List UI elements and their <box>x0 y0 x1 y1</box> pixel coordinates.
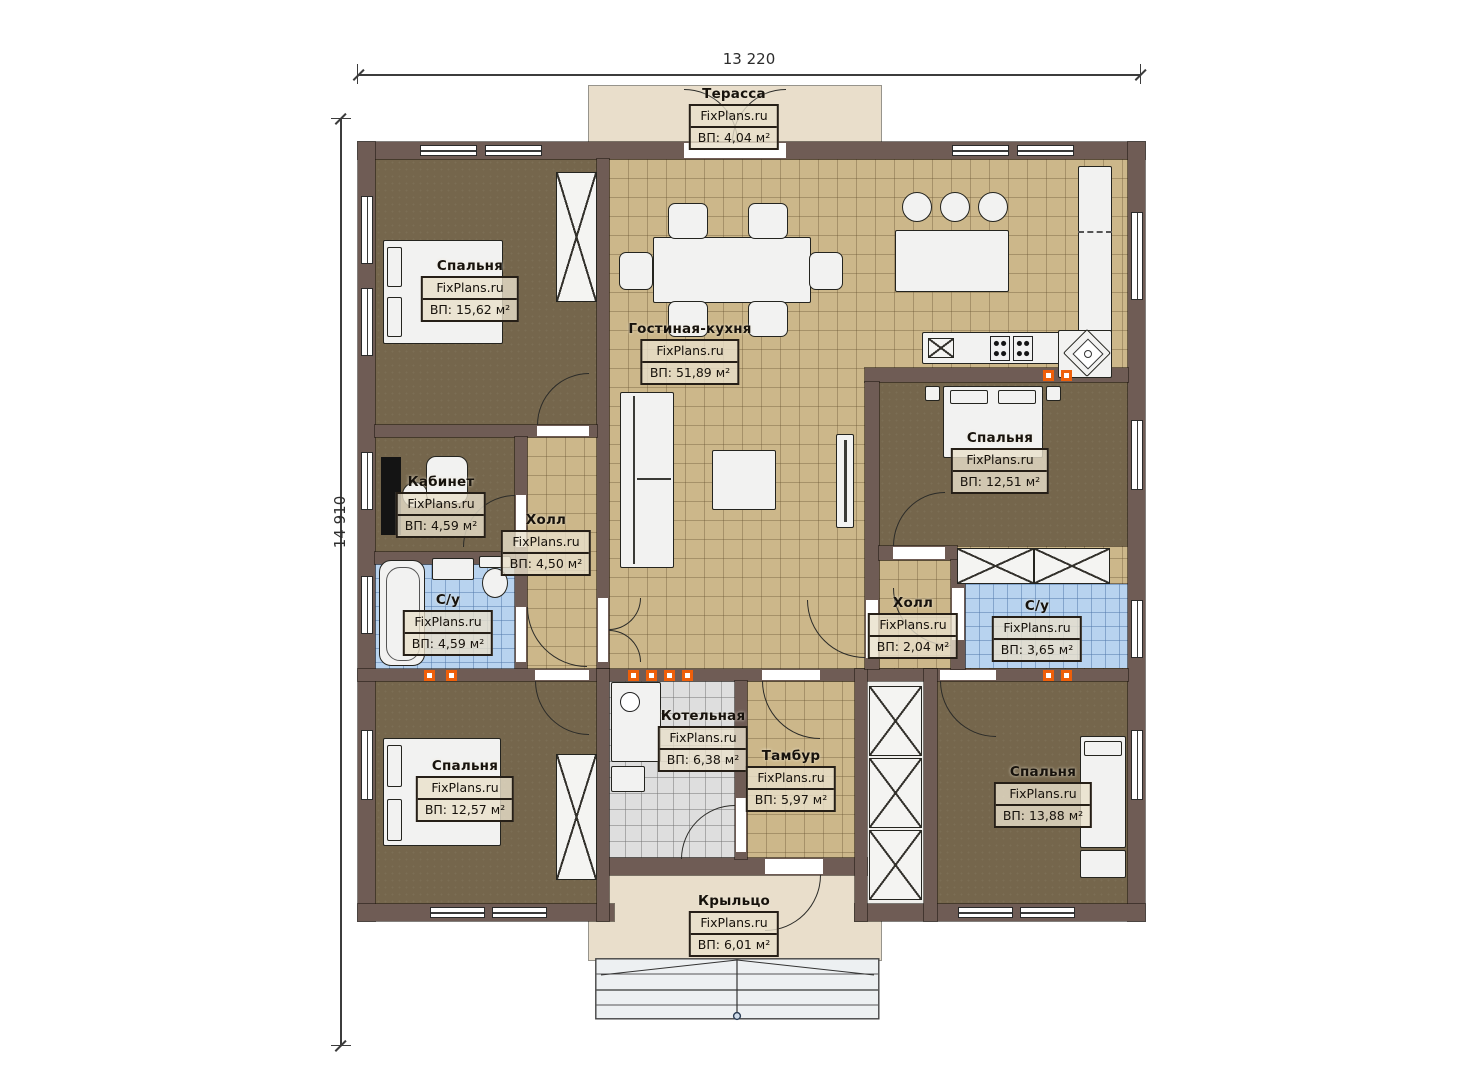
vent-marker <box>446 670 457 681</box>
chair <box>668 203 708 239</box>
room-name: Холл <box>501 512 591 528</box>
room-name: Холл <box>868 595 958 611</box>
room-label-bedroom-bl: Спальня FixPlans.ru ВП: 12,57 м² <box>416 758 514 822</box>
window <box>492 907 547 918</box>
sink <box>432 558 474 580</box>
room-area: ВП: 12,51 м² <box>953 470 1047 492</box>
bar-stool <box>902 192 932 222</box>
wall-v-bedroombl <box>597 669 609 921</box>
room-brand: FixPlans.ru <box>423 278 517 298</box>
room-brand: FixPlans.ru <box>660 728 746 748</box>
window <box>361 196 373 264</box>
dimension-line-top <box>358 74 1141 76</box>
room-area: ВП: 6,01 м² <box>691 933 777 955</box>
boiler-dial <box>620 692 640 712</box>
chair <box>809 252 843 290</box>
pillow <box>387 297 402 337</box>
wall-v4 <box>855 669 867 921</box>
room-label-porch: Крыльцо FixPlans.ru ВП: 6,01 м² <box>689 893 779 957</box>
opening-bedroom-br <box>940 670 996 680</box>
opening-vestibule-top <box>762 670 820 680</box>
window <box>361 288 373 356</box>
wardrobe <box>556 754 597 880</box>
room-area: ВП: 5,97 м² <box>748 788 834 810</box>
room-area: ВП: 4,04 м² <box>691 126 777 148</box>
wall-v1 <box>597 159 609 669</box>
window <box>1131 600 1143 658</box>
dining-table <box>653 237 811 303</box>
opening-bath-left <box>516 607 526 662</box>
porch-steps <box>595 958 880 1022</box>
room-brand: FixPlans.ru <box>996 784 1090 804</box>
nightstand <box>1046 386 1061 401</box>
room-brand: FixPlans.ru <box>405 612 491 632</box>
window <box>1017 145 1074 156</box>
room-label-vestibule: Тамбур FixPlans.ru ВП: 5,97 м² <box>746 748 836 812</box>
bar-stool <box>978 192 1008 222</box>
vent-marker <box>1061 370 1072 381</box>
room-area: ВП: 4,50 м² <box>503 552 589 574</box>
room-area: ВП: 6,38 м² <box>660 748 746 770</box>
window <box>1131 420 1143 490</box>
sofa-line <box>637 478 671 480</box>
pillow <box>998 390 1036 404</box>
room-label-bedroom-tl: Спальня FixPlans.ru ВП: 15,62 м² <box>421 258 519 322</box>
room-name: Спальня <box>994 764 1092 780</box>
opening-hall-left <box>598 598 608 662</box>
window <box>952 145 1009 156</box>
room-brand: FixPlans.ru <box>418 778 512 798</box>
opening-bedroom-tl <box>537 426 589 436</box>
coffee-table <box>712 450 776 510</box>
window <box>361 576 373 634</box>
room-area: ВП: 15,62 м² <box>423 298 517 320</box>
room-name: Гостиная-кухня <box>628 321 751 337</box>
room-area: ВП: 12,57 м² <box>418 798 512 820</box>
window <box>430 907 485 918</box>
room-name: Спальня <box>421 258 519 274</box>
window <box>485 145 542 156</box>
room-label-hall-right: Холл FixPlans.ru ВП: 2,04 м² <box>868 595 958 659</box>
room-name: Крыльцо <box>689 893 779 909</box>
room-brand: FixPlans.ru <box>953 450 1047 470</box>
closet <box>869 686 922 756</box>
dimension-width-label: 13 220 <box>699 50 799 68</box>
stove-burners <box>1013 336 1033 361</box>
room-brand: FixPlans.ru <box>643 341 737 361</box>
room-label-bath-right: С/у FixPlans.ru ВП: 3,65 м² <box>992 598 1082 662</box>
wall-v5 <box>924 669 937 921</box>
opening-bedroom-right <box>893 547 945 559</box>
room-area: ВП: 4,59 м² <box>398 514 484 536</box>
room-label-boiler-room: Котельная FixPlans.ru ВП: 6,38 м² <box>658 708 748 772</box>
opening-boiler <box>736 798 746 852</box>
room-label-terrace: Терасса FixPlans.ru ВП: 4,04 м² <box>689 86 779 150</box>
chair <box>619 252 653 290</box>
window <box>1020 907 1075 918</box>
nightstand <box>925 386 940 401</box>
room-label-study: Кабинет FixPlans.ru ВП: 4,59 м² <box>396 474 486 538</box>
vent-marker <box>682 670 693 681</box>
vent-marker <box>1061 670 1072 681</box>
kitchen-counter-right <box>1078 166 1112 334</box>
room-name: Кабинет <box>396 474 486 490</box>
dimension-height-label: 14 910 <box>331 472 349 572</box>
room-name: Терасса <box>689 86 779 102</box>
room-brand: FixPlans.ru <box>748 768 834 788</box>
room-area: ВП: 51,89 м² <box>643 361 737 383</box>
opening-porch <box>765 859 823 874</box>
chair <box>748 301 788 337</box>
window <box>361 452 373 510</box>
room-name: Спальня <box>416 758 514 774</box>
vent-marker <box>664 670 675 681</box>
wall-bottom-center <box>597 858 867 875</box>
closet <box>869 758 922 828</box>
room-label-bath-left: С/у FixPlans.ru ВП: 4,59 м² <box>403 592 493 656</box>
counter-divider <box>1078 231 1112 233</box>
dimension-line-left <box>340 118 342 1046</box>
wall-h3 <box>358 669 1128 681</box>
pillow <box>387 247 402 287</box>
bar-stool <box>940 192 970 222</box>
vent-marker <box>628 670 639 681</box>
vent-marker <box>1043 670 1054 681</box>
room-area: ВП: 13,88 м² <box>996 804 1090 826</box>
pillow <box>387 745 402 787</box>
utility-sink <box>611 766 645 792</box>
dresser <box>1080 850 1126 878</box>
window <box>1131 212 1143 300</box>
room-label-living-kitchen: Гостиная-кухня FixPlans.ru ВП: 51,89 м² <box>628 321 751 385</box>
room-brand: FixPlans.ru <box>503 532 589 552</box>
vent-marker <box>646 670 657 681</box>
window <box>420 145 477 156</box>
window <box>958 907 1013 918</box>
room-brand: FixPlans.ru <box>870 615 956 635</box>
window <box>1131 730 1143 800</box>
room-label-bedroom-right: Спальня FixPlans.ru ВП: 12,51 м² <box>951 430 1049 494</box>
closet <box>1034 548 1110 584</box>
chair <box>748 203 788 239</box>
room-name: Тамбур <box>746 748 836 764</box>
vent-marker <box>1043 370 1054 381</box>
room-brand: FixPlans.ru <box>398 494 484 514</box>
sofa <box>620 392 674 568</box>
wall-outer-bottom-left <box>358 904 614 921</box>
wardrobe <box>556 172 597 302</box>
window <box>361 730 373 800</box>
room-area: ВП: 2,04 м² <box>870 635 956 657</box>
room-name: С/у <box>403 592 493 608</box>
sink-mark <box>928 338 954 358</box>
tv-screen <box>844 440 847 522</box>
floor-plan: 13 220 14 910 <box>0 0 1473 1080</box>
vent-marker <box>424 670 435 681</box>
room-brand: FixPlans.ru <box>691 913 777 933</box>
kitchen-island <box>895 230 1009 292</box>
opening-bedroom-bl <box>535 670 589 680</box>
closet <box>957 548 1034 584</box>
room-name: Спальня <box>951 430 1049 446</box>
sofa-line <box>633 396 635 564</box>
room-brand: FixPlans.ru <box>691 106 777 126</box>
room-area: ВП: 3,65 м² <box>994 638 1080 660</box>
pillow <box>950 390 988 404</box>
closet <box>869 830 922 900</box>
drain <box>1084 350 1092 358</box>
room-label-bedroom-br: Спальня FixPlans.ru ВП: 13,88 м² <box>994 764 1092 828</box>
room-brand: FixPlans.ru <box>994 618 1080 638</box>
room-name: С/у <box>992 598 1082 614</box>
room-name: Котельная <box>658 708 748 724</box>
room-label-hall-left: Холл FixPlans.ru ВП: 4,50 м² <box>501 512 591 576</box>
pillow <box>1084 741 1122 756</box>
stove-burners <box>990 336 1010 361</box>
pillow <box>387 799 402 841</box>
room-area: ВП: 4,59 м² <box>405 632 491 654</box>
